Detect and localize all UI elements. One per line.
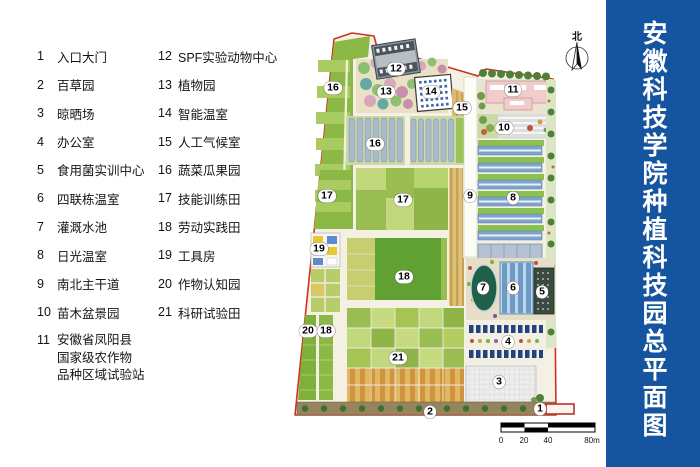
scale-bar: 0 20 40 80m [499, 423, 600, 445]
svg-text:0: 0 [499, 436, 504, 445]
legend-item-9: 9南北主干道 [37, 270, 167, 298]
legend-item-8: 8日光温室 [37, 241, 167, 269]
legend-label: 工具房 [178, 246, 216, 265]
legend-item-18: 18劳动实践田 [158, 213, 303, 241]
zone-7-irrigation-pond [471, 265, 497, 311]
legend-item-12: 12SPF实验动物中心 [158, 42, 303, 70]
legend-label: SPF实验动物中心 [178, 47, 277, 66]
legend-label: 劳动实践田 [178, 217, 241, 236]
legend-label: 植物园 [178, 75, 216, 94]
legend-num: 10 [37, 305, 57, 319]
legend-item-3: 3晾晒场 [37, 99, 167, 127]
legend-num: 20 [158, 277, 178, 291]
legend-item-4: 4办公室 [37, 127, 167, 155]
legend-num: 17 [158, 191, 178, 205]
svg-text:40: 40 [544, 436, 553, 445]
legend-label: 苗木盆景园 [57, 303, 120, 322]
zone-17-training-fields [314, 168, 448, 230]
legend-num: 7 [37, 220, 57, 234]
legend-item-11: 11安徽省凤阳县 国家级农作物 品种区域试验站 [37, 332, 167, 385]
legend-num: 8 [37, 248, 57, 262]
legend-label: 蔬菜瓜果园 [178, 160, 241, 179]
legend-item-2: 2百草园 [37, 70, 167, 98]
zone-12-spf-building [372, 39, 421, 79]
legend-num: 12 [158, 49, 178, 63]
legend-label: 灌溉水池 [57, 217, 107, 236]
legend-label: 技能训练田 [178, 189, 241, 208]
zone-6-quad-greenhouse [500, 262, 533, 314]
legend-label: 四联栋温室 [57, 189, 120, 208]
legend-label: 南北主干道 [57, 274, 120, 293]
north-arrow-icon: 北 [566, 30, 588, 70]
legend-item-20: 20作物认知园 [158, 270, 303, 298]
legend-item-16: 16蔬菜瓜果园 [158, 156, 303, 184]
legend-label: 食用菌实训中心 [57, 160, 145, 179]
zone-1-entrance-gate [546, 404, 574, 414]
legend-num: 4 [37, 135, 57, 149]
legend-num: 1 [37, 49, 57, 63]
legend-label: 日光温室 [57, 246, 107, 265]
legend-column-2: 12SPF实验动物中心 13植物园 14智能温室 15人工气候室 16蔬菜瓜果园… [158, 42, 303, 326]
legend-item-5: 5食用菌实训中心 [37, 156, 167, 184]
zone-3-drying-yard [466, 366, 544, 403]
legend-label: 安徽省凤阳县 国家级农作物 品种区域试验站 [57, 332, 145, 385]
legend-item-15: 15人工气候室 [158, 127, 303, 155]
legend-num: 9 [37, 277, 57, 291]
legend-item-19: 19工具房 [158, 241, 303, 269]
zone-9-main-road [464, 77, 477, 257]
legend-label: 人工气候室 [178, 132, 241, 151]
legend-item-21: 21科研试验田 [158, 298, 303, 326]
zone-pond-block [466, 258, 554, 320]
plan-poster: 1入口大门 2百草园 3晾晒场 4办公室 5食用菌实训中心 6四联栋温室 7灌溉… [0, 0, 700, 467]
legend-num: 21 [158, 305, 178, 319]
zone-2-herb-garden [297, 402, 555, 415]
legend-item-7: 7灌溉水池 [37, 213, 167, 241]
legend-num: 14 [158, 106, 178, 120]
zone-16-greenhouse-rows [346, 116, 464, 165]
svg-text:80m: 80m [584, 436, 600, 445]
zone-10-nursery-garden [478, 114, 553, 138]
legend-num: 18 [158, 220, 178, 234]
zone-wheat-sliver [450, 258, 464, 306]
legend-item-1: 1入口大门 [37, 42, 167, 70]
legend-num: 13 [158, 78, 178, 92]
legend-item-6: 6四联栋温室 [37, 184, 167, 212]
svg-text:20: 20 [520, 436, 529, 445]
zone-4-office [466, 322, 544, 364]
page-title: 安徽科技学院种植科技园总平面图 [606, 20, 700, 440]
zone-19-tool-house [311, 233, 340, 267]
legend-num: 6 [37, 191, 57, 205]
zone-21-research-field [347, 308, 464, 402]
legend-label: 智能温室 [178, 104, 228, 123]
zone-small-plots [311, 269, 340, 312]
legend-num: 16 [158, 163, 178, 177]
legend-label: 办公室 [57, 132, 95, 151]
legend-label: 作物认知园 [178, 274, 241, 293]
svg-text:北: 北 [572, 30, 582, 43]
legend-item-10: 10苗木盆景园 [37, 298, 167, 326]
legend-label: 百草园 [57, 75, 95, 94]
zone-5-mushroom-center [534, 268, 554, 314]
legend-item-14: 14智能温室 [158, 99, 303, 127]
title-bar: 安徽科技学院种植科技园总平面图 [606, 0, 700, 467]
legend-column-1: 1入口大门 2百草园 3晾晒场 4办公室 5食用菌实训中心 6四联栋温室 7灌溉… [37, 42, 167, 385]
legend-num: 15 [158, 135, 178, 149]
legend-num: 5 [37, 163, 57, 177]
legend-item-17: 17技能训练田 [158, 184, 303, 212]
legend-item-13: 13植物园 [158, 70, 303, 98]
legend-label: 入口大门 [57, 47, 107, 66]
legend-num: 11 [37, 332, 57, 350]
zone-18-labor-field [347, 238, 447, 300]
legend-label: 晾晒场 [57, 104, 95, 123]
site-map: 北 0 20 40 80m [290, 10, 608, 460]
legend-num: 3 [37, 106, 57, 120]
legend-num: 2 [37, 78, 57, 92]
legend-num: 19 [158, 248, 178, 262]
legend-label: 科研试验田 [178, 303, 241, 322]
zone-14-smart-greenhouse [415, 74, 454, 111]
zone-18-strip [319, 315, 333, 400]
